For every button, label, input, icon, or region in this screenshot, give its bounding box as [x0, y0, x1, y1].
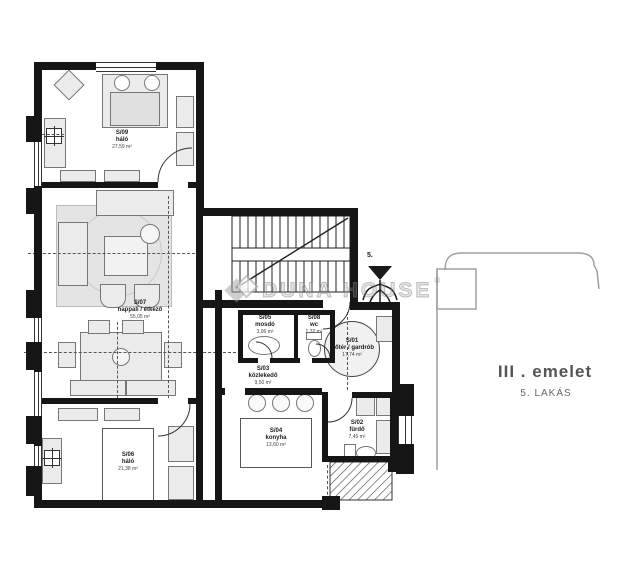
wall-segment: [245, 388, 322, 395]
room-label-nappali: S/07 nappali / étkező 55,05 m²: [118, 300, 163, 320]
window-symbol: [96, 62, 156, 72]
wall-segment: [392, 302, 400, 392]
door-arc: [158, 148, 192, 182]
window-symbol: [34, 372, 42, 416]
window-symbol: [34, 318, 42, 342]
door-arc: [328, 398, 352, 422]
wall-segment: [203, 208, 358, 216]
wall-segment: [238, 310, 243, 363]
wall-segment: [322, 392, 328, 462]
wall-pilaster: [26, 188, 36, 214]
registered-trademark-icon: ®: [434, 276, 440, 285]
wall-segment: [238, 358, 258, 363]
wall-segment: [196, 62, 204, 216]
duna-house-watermark: DUNA HOUSE ®: [226, 276, 440, 306]
room-label-wc: S/08 wc 1,32 m²: [306, 315, 323, 335]
wall-segment: [36, 182, 158, 188]
wall-segment: [188, 398, 203, 404]
window-symbol: [398, 416, 412, 444]
wall-segment: [388, 456, 414, 472]
room-label-halo-bottom: S/06 háló 21,38 m²: [118, 452, 138, 472]
room-label-furdo: S/02 fürdő 7,45 m²: [349, 420, 366, 440]
door-arc: [316, 344, 330, 358]
wall-pilaster: [26, 116, 36, 142]
wall-segment: [312, 358, 335, 363]
hatched-wall-area: [330, 462, 392, 500]
floor-plan-canvas: S/09 háló 27,59 m² S/07 nappali / étkező…: [0, 0, 640, 587]
wall-pilaster: [26, 290, 36, 318]
duna-house-logo-icon: [226, 276, 256, 306]
wall-segment: [42, 398, 158, 404]
wall-pilaster: [26, 466, 36, 496]
room-label-kozlekedo: S/03 közlekedő 9,50 m²: [248, 366, 277, 386]
wall-pilaster: [26, 416, 36, 444]
room-label-eloter: S/01 előtér / gardrób 17,74 m²: [330, 338, 374, 358]
wall-segment: [215, 388, 225, 395]
wall-segment: [396, 384, 414, 416]
wall-segment: [322, 456, 398, 462]
apartment-subtitle: 5. LAKÁS: [520, 388, 571, 399]
wall-segment: [196, 216, 203, 507]
floor-title: III . emelet: [498, 362, 592, 382]
wall-pilaster: [26, 342, 36, 370]
door-arc: [158, 404, 190, 436]
wall-segment: [34, 500, 332, 508]
stair-number: 5.: [367, 252, 373, 259]
room-label-konyha: S/04 konyha 13,60 m²: [265, 428, 286, 448]
door-arc: [256, 342, 272, 358]
window-symbol: [34, 142, 42, 186]
wall-segment: [270, 358, 300, 363]
window-symbol: [34, 446, 42, 466]
room-label-mosdo: S/05 mosdó 3,06 m²: [255, 315, 275, 335]
wall-segment: [294, 310, 298, 363]
wall-segment: [215, 290, 222, 507]
wall-segment: [322, 496, 340, 510]
room-label-halo-top: S/09 háló 27,59 m²: [112, 130, 132, 150]
door-arc: [323, 302, 350, 329]
watermark-brand-text: DUNA HOUSE: [262, 279, 432, 303]
